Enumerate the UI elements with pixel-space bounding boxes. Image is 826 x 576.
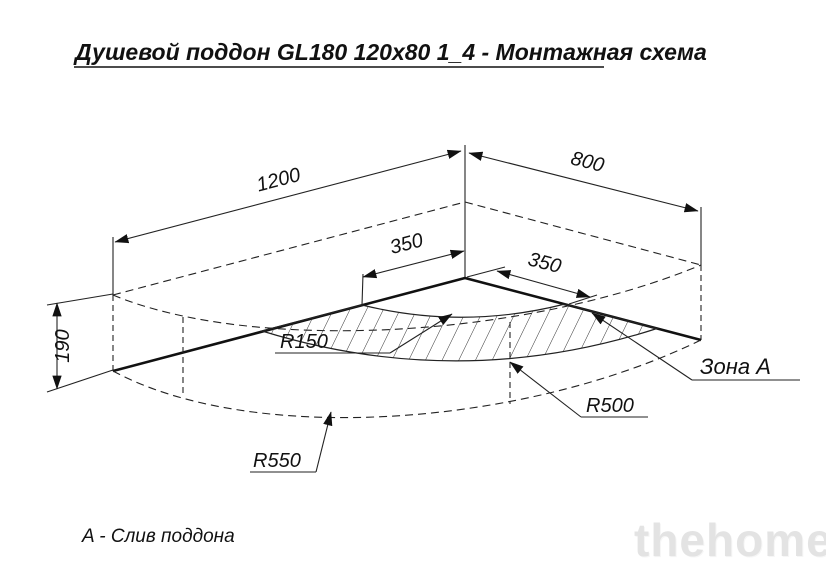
drain-offset-left-label: 350 [388,229,426,259]
box-top-right-edge [465,202,701,265]
montage-scheme-drawing: Душевой поддон GL180 120x80 1_4 - Монтаж… [0,0,826,576]
dim-350l-line [363,251,464,277]
length-dim-label: 1200 [254,164,303,196]
drain-offset-right-label: 350 [526,248,564,278]
drawing-sheet: Душевой поддон GL180 120x80 1_4 - Монтаж… [0,0,826,576]
height-dim-label: 190 [52,329,74,362]
drawing-title: Душевой поддон GL180 120x80 1_4 - Монтаж… [73,39,707,65]
r500-label: R500 [586,395,634,417]
dimension-190: 190 [47,294,113,392]
r550-label: R550 [253,450,301,472]
dim-350r-line [497,271,590,297]
r550-leader [316,412,331,472]
dim-1200-line [115,151,461,242]
dim-350r-extension-far [569,295,597,304]
dimension-800: 800 [469,147,701,265]
r150-label: R150 [280,331,328,353]
zone-a-label: Зона A [700,354,771,379]
zone-a-leader [592,313,692,380]
watermark: thehome [634,514,826,566]
dimension-1200: 1200 [113,151,461,295]
width-dim-label: 800 [569,147,607,176]
dimension-350-left: 350 [362,229,464,305]
callout-r550: R550 [250,412,331,472]
dim-350l-extension [362,274,363,305]
drain-note: A - Слив поддона [81,526,235,547]
r500-leader [510,362,581,417]
